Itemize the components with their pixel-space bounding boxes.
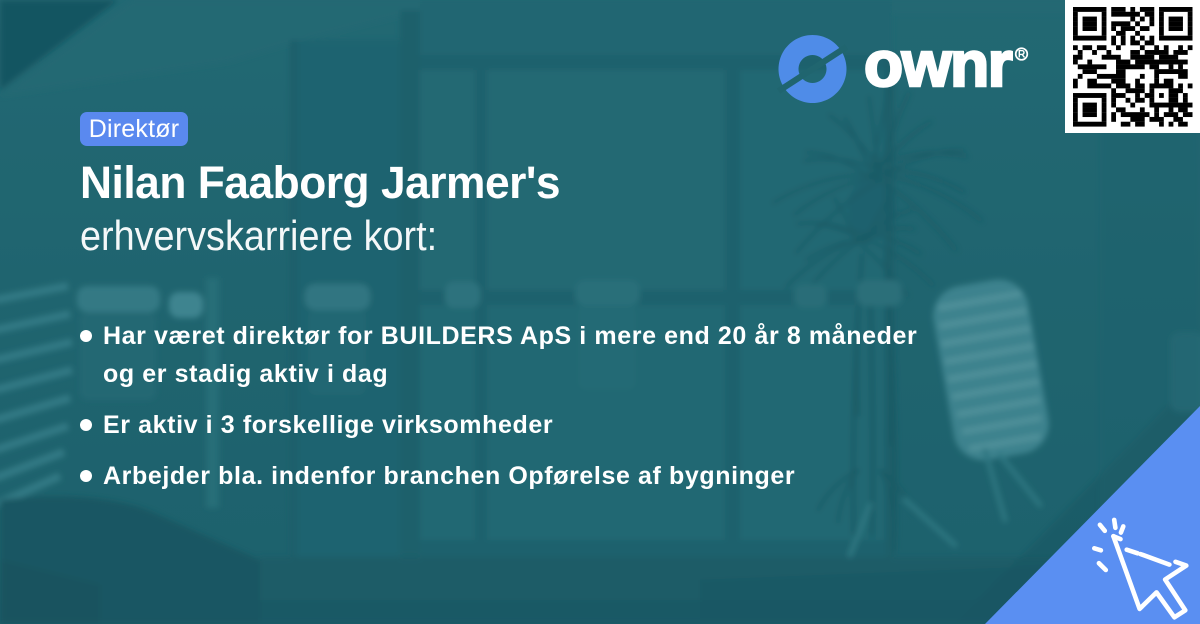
svg-text:ownr: ownr [864,28,1012,100]
